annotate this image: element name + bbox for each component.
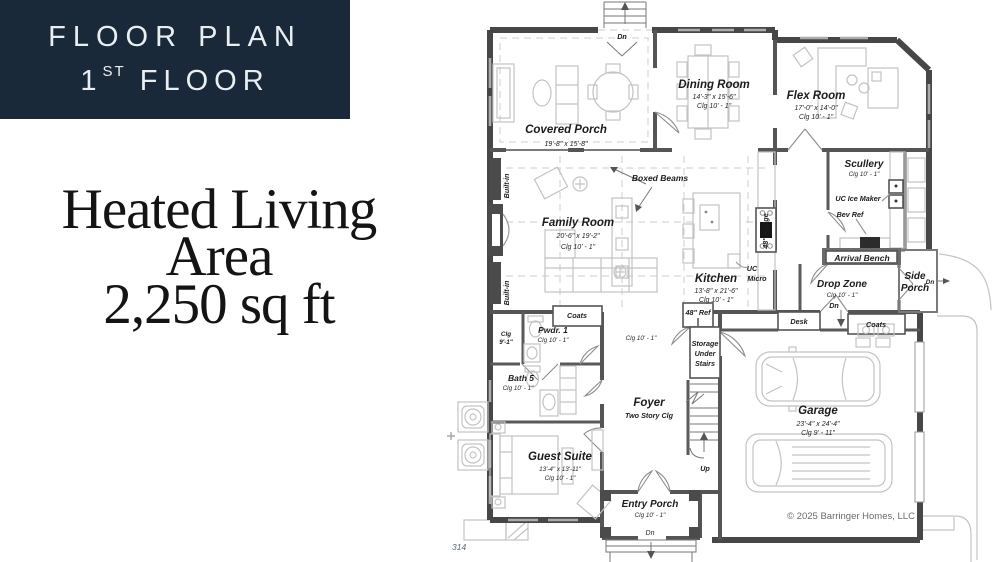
label-dn-top-steps: Dn — [617, 32, 627, 41]
top-exterior-steps — [604, 2, 646, 56]
label-covered-porch: Covered Porch — [525, 124, 607, 136]
clg-kitchen: Clg 10' - 1" — [699, 297, 734, 304]
label-dn-side: Dn — [926, 279, 935, 286]
label-side-porch-1: Side — [904, 271, 926, 282]
label-coats-left: Coats — [567, 311, 587, 320]
family-room-furniture — [534, 167, 657, 292]
clg-garage: Clg 9' - 11" — [801, 430, 835, 437]
label-drop-zone: Drop Zone — [817, 279, 867, 290]
label-two-story-clg: Two Story Clg — [625, 411, 674, 420]
label-guest-suite: Guest Suite — [528, 451, 593, 463]
label-family: Family Room — [542, 217, 614, 229]
label-storage-3: Stairs — [695, 359, 715, 368]
label-scullery: Scullery — [845, 159, 884, 170]
label-uc-ice-maker: UC Ice Maker — [835, 194, 881, 203]
clg-hall: Clg 10' - 1" — [626, 335, 658, 342]
copyright-text: © 2025 Barringer Homes, LLC — [787, 511, 915, 522]
label-entry-porch: Entry Porch — [622, 499, 679, 510]
covered-porch-furniture — [493, 64, 638, 124]
label-up: Up — [700, 464, 710, 473]
label-micro: Micro — [747, 274, 767, 283]
label-closet-clg-2: 9'-1" — [499, 339, 514, 346]
label-dn-entry: Dn — [646, 530, 655, 537]
label-arrival-bench: Arrival Bench — [833, 253, 889, 263]
dims-covered-porch: 19'-8" x 15'-8" — [544, 141, 588, 148]
label-built-in-2: Built-in — [502, 280, 511, 305]
label-uc: UC — [747, 264, 758, 273]
label-built-in-1: Built-in — [502, 173, 511, 198]
coats-closet-right — [848, 314, 905, 347]
label-closet-clg-1: Clg — [501, 331, 511, 338]
label-dining: Dining Room — [678, 79, 750, 91]
label-coats-right: Coats — [866, 320, 886, 329]
label-storage-2: Under — [695, 349, 717, 358]
drop-zone-dn-arrow — [837, 310, 845, 327]
clg-flex: Clg 10' - 1" — [799, 114, 834, 121]
clg-scullery: Clg 10' - 1" — [849, 171, 881, 178]
label-storage-1: Storage — [692, 339, 719, 348]
ac-units — [447, 402, 488, 470]
label-desk: Desk — [790, 317, 808, 326]
dims-kitchen: 13'-8" x 21'-6" — [694, 288, 738, 295]
label-48-ref: 48" Ref — [685, 308, 712, 317]
dims-garage: 23'-4" x 24'-4" — [795, 421, 840, 428]
label-bev-ref: Bev Ref — [837, 210, 864, 219]
clg-entry-porch: Clg 10' - 1" — [635, 512, 667, 519]
dims-dining: 14'-3" x 15'-6" — [692, 94, 736, 101]
clg-pwdr: Clg 10' - 1" — [538, 337, 570, 344]
dims-flex: 17'-0" x 14'-0" — [794, 105, 838, 112]
label-boxed-beams: Boxed Beams — [632, 173, 688, 183]
dining-furniture — [677, 45, 739, 139]
label-garage: Garage — [798, 405, 838, 417]
page-number: 314 — [452, 542, 466, 552]
label-48-range: 48" Range — [761, 213, 770, 249]
clg-guest-suite: Clg 10' - 1" — [545, 475, 577, 482]
clg-drop-zone: Clg 10' - 1" — [827, 292, 859, 299]
clg-family: Clg 10' - 1" — [561, 244, 596, 251]
label-flex: Flex Room — [787, 90, 846, 102]
label-dn-drop: Dn — [829, 301, 839, 310]
clg-bath5: Clg 10' - 1" — [503, 385, 535, 392]
label-kitchen: Kitchen — [695, 273, 737, 285]
clg-dining: Clg 10' - 1" — [697, 103, 732, 110]
label-pwdr: Pwdr. 1 — [538, 325, 568, 335]
floor-plan-drawing: Covered Porch 19'-8" x 15'-8" Dining Roo… — [0, 0, 1000, 562]
label-bath5: Bath 5 — [508, 373, 534, 383]
label-foyer: Foyer — [633, 397, 665, 409]
dims-family: 20'-6" x 19'-2" — [555, 233, 600, 240]
dims-guest-suite: 13'-4" x 13'-11" — [539, 466, 582, 473]
room-labels: Covered Porch 19'-8" x 15'-8" Dining Roo… — [452, 32, 934, 552]
